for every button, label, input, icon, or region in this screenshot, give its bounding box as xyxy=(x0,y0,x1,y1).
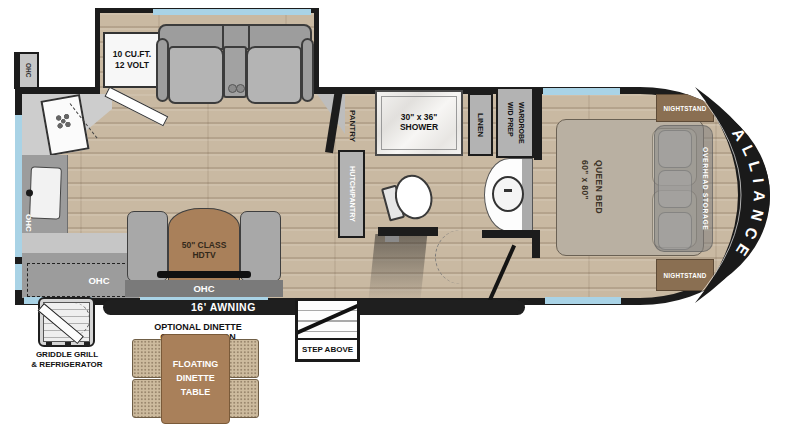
interior-steps-shading xyxy=(369,234,428,298)
queen-bed-label: QUEEN BED 60" x 80" xyxy=(575,131,609,243)
ohc-label-rear: OHC xyxy=(25,63,32,77)
floorplan-canvas: OHC OHC 50" CLASS HDTV OHC PANTRY 30" x … xyxy=(0,0,800,436)
wardrobe-label-line2: W/D PREP xyxy=(505,102,516,144)
bath-vanity xyxy=(484,158,533,232)
vanity-sink xyxy=(492,176,524,212)
vanity-lower-wall xyxy=(482,230,536,238)
steps-diagonal xyxy=(298,303,357,335)
hutch-pantry: HUTCH/PANTRY xyxy=(338,150,365,238)
entry-door xyxy=(487,245,516,303)
cupholder-icon xyxy=(236,84,245,93)
toilet xyxy=(379,169,437,226)
shower-pan: 30" x 36" SHOWER xyxy=(381,96,457,150)
griddle-label-line1: GRIDDLE GRILL xyxy=(18,350,116,360)
ohc-label-kitchen: OHC xyxy=(73,276,125,287)
slide-window xyxy=(153,9,311,15)
dinette-table-line3: TABLE xyxy=(181,386,210,400)
vanity-faucet-icon xyxy=(504,189,512,192)
sofa-divider xyxy=(248,25,250,49)
dinette-chair xyxy=(132,339,163,378)
sofa-seat-right xyxy=(246,46,302,104)
rear-window xyxy=(15,264,22,290)
rear-window xyxy=(15,115,22,257)
dinette-chair xyxy=(228,379,259,418)
wardrobe-label: WARDROBE W/D PREP xyxy=(505,102,526,144)
griddle-grill-icon xyxy=(38,297,95,347)
steps-icon xyxy=(298,301,357,338)
bath-door-swing-arc xyxy=(435,230,486,284)
burner-icon xyxy=(54,112,73,131)
linen-cabinet: LINEN xyxy=(468,93,493,156)
tv-base-cabinet: OHC xyxy=(125,280,283,297)
ohc-label-tv: OHC xyxy=(193,283,214,294)
front-cap: ALLIANCE xyxy=(640,80,780,312)
wardrobe-label-line1: WARDROBE xyxy=(515,102,526,144)
refrigerator-label-line2: 12 VOLT xyxy=(115,60,149,71)
sofa-divider xyxy=(222,25,224,49)
bath-cabinet-wall xyxy=(378,227,438,236)
linen-label: LINEN xyxy=(476,113,485,137)
sofa-seat-left xyxy=(168,46,224,104)
tv-label-line2: HDTV xyxy=(192,251,215,261)
pantry-label: PANTRY xyxy=(345,97,360,155)
sofa-armrest-right xyxy=(301,38,314,102)
sofa-console xyxy=(223,46,247,98)
bath-bedroom-wall xyxy=(534,87,542,160)
dinette-table-line1: FLOATING xyxy=(173,358,218,372)
dinette-chair xyxy=(132,379,163,418)
griddle-feet xyxy=(46,342,90,346)
tv-screen xyxy=(157,271,251,278)
refrigerator-label-line1: 10 CU.FT. xyxy=(113,49,151,60)
dinette-table-line2: DINETTE xyxy=(176,372,215,386)
griddle-label-line2: & REFRIGERATOR xyxy=(18,360,116,370)
bed-label-line1: QUEEN BED xyxy=(592,160,606,214)
step-above-marker: STEP ABOVE xyxy=(295,298,360,362)
lower-divider-wall xyxy=(532,230,540,258)
shower-label-line2: SHOWER xyxy=(400,123,438,133)
wardrobe-wd-prep: WARDROBE W/D PREP xyxy=(496,87,534,158)
rear-overhead-cabinet: OHC xyxy=(14,52,39,89)
floating-dinette-table: FLOATING DINETTE TABLE xyxy=(161,334,230,424)
griddle-label: GRIDDLE GRILL & REFRIGERATOR xyxy=(18,350,116,371)
refrigerator: 10 CU.FT. 12 VOLT xyxy=(103,32,161,88)
bedroom-window-top xyxy=(543,88,620,95)
dinette-chair xyxy=(228,339,259,378)
step-above-label: STEP ABOVE xyxy=(298,338,357,359)
bed-label-line2: 60" x 80" xyxy=(578,160,592,214)
hutch-pantry-label: HUTCH/PANTRY xyxy=(347,166,355,222)
bath-cabinet-step xyxy=(385,236,399,242)
shower: 30" x 36" SHOWER xyxy=(375,90,463,156)
awning-label: 16' AWNING xyxy=(191,301,256,313)
bedroom-window-bottom xyxy=(545,297,621,304)
faucet-icon xyxy=(26,189,33,196)
